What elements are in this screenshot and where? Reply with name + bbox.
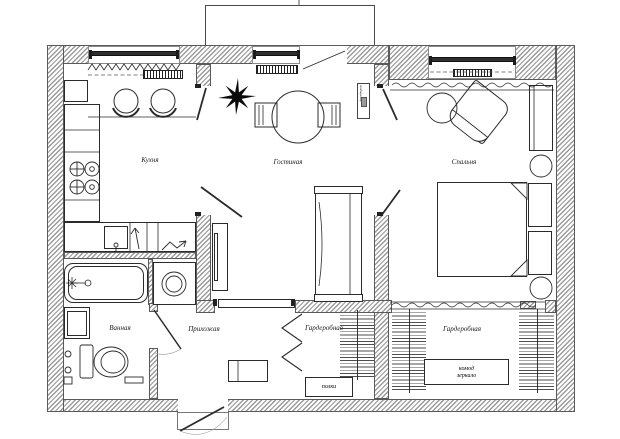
room-label-wardrobe1: Гардеробная — [305, 324, 343, 332]
wall-right — [556, 45, 575, 412]
nightstand-top — [528, 183, 552, 227]
ac-unit: кондиционер — [357, 83, 370, 119]
nightstand-bottom — [528, 231, 552, 275]
kitchen-sink-cabinet — [104, 226, 128, 249]
dresser-label: комод — [459, 366, 474, 372]
shelves-box: полки — [305, 377, 353, 397]
sofa-top-arm — [314, 186, 363, 194]
sofa-bottom-arm — [314, 294, 363, 302]
bar-stools — [88, 89, 196, 117]
kitchen-counter-bottom — [64, 222, 196, 252]
floor-plan: кондиционер комод зеркало полки Кухня Го… — [0, 0, 620, 439]
living-window — [254, 51, 299, 56]
room-label-kitchen: Кухня — [141, 156, 158, 164]
room-label-wardrobe2: Гардеробная — [443, 325, 481, 333]
wall-left — [47, 45, 64, 412]
bifold-doors — [282, 314, 302, 371]
sofa — [315, 188, 362, 300]
bedroom-window — [430, 57, 515, 62]
washing-machine — [153, 262, 196, 305]
entrance-opening — [178, 399, 228, 412]
wall-bath-lower — [149, 348, 158, 399]
bathroom-sink-inner — [67, 311, 87, 336]
balcony-outline — [205, 5, 375, 48]
wall-bottom — [47, 399, 575, 412]
living-hall-opening-sill — [218, 299, 295, 308]
bedroom-radiator — [453, 69, 492, 77]
bed — [437, 182, 527, 277]
living-radiator — [256, 65, 298, 74]
balcony-door-opening — [300, 46, 347, 64]
tv — [214, 233, 218, 281]
dining-table-set — [255, 91, 340, 143]
toilet — [64, 345, 143, 384]
mirror-label: зеркало — [457, 373, 476, 379]
wall-divider-a — [196, 300, 215, 313]
wall-kitchen-bathroom — [64, 252, 196, 259]
hallway-bench — [228, 360, 268, 382]
hanging-rail-wardrobe1 — [340, 313, 374, 377]
room-label-bedroom: Спальня — [452, 158, 477, 166]
fridge — [64, 80, 88, 102]
kitchen-heater — [143, 70, 183, 79]
bedroom-shelf — [529, 85, 553, 151]
dresser-mirror: комод зеркало — [424, 359, 509, 385]
wall-divider-c — [520, 301, 536, 309]
ac-grille — [361, 97, 367, 107]
bathtub-inner — [68, 266, 144, 300]
entrance-porch — [177, 412, 229, 430]
hanging-rail-wardrobe2-right — [519, 312, 554, 390]
bathroom-door — [154, 310, 181, 354]
star-decor — [218, 78, 256, 115]
kitchen-counter-left — [64, 104, 100, 222]
armchair — [446, 79, 512, 145]
room-label-hallway: Прихожая — [188, 325, 220, 333]
bedroom-door-opening — [374, 86, 389, 215]
shelves-label: полки — [322, 384, 336, 390]
room-label-living: Гостиная — [273, 158, 302, 166]
room-label-bathroom: Ванная — [109, 324, 130, 332]
hanging-rail-wardrobe2-left — [392, 312, 426, 390]
armchair-back — [445, 109, 489, 147]
kitchen-door-opening — [196, 86, 211, 215]
kitchen-window — [90, 51, 178, 56]
